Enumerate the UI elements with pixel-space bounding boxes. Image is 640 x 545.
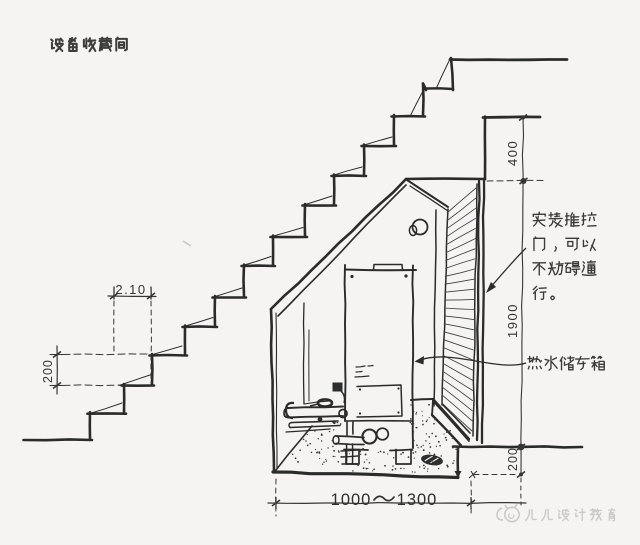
svg-text:2.10: 2.10 — [115, 282, 146, 297]
svg-text:400: 400 — [505, 140, 520, 166]
svg-text:1900: 1900 — [505, 303, 520, 338]
svg-text:200: 200 — [41, 359, 55, 383]
svg-text:1300: 1300 — [397, 491, 438, 509]
svg-text:200: 200 — [506, 447, 520, 471]
svg-text:1000: 1000 — [331, 491, 372, 509]
